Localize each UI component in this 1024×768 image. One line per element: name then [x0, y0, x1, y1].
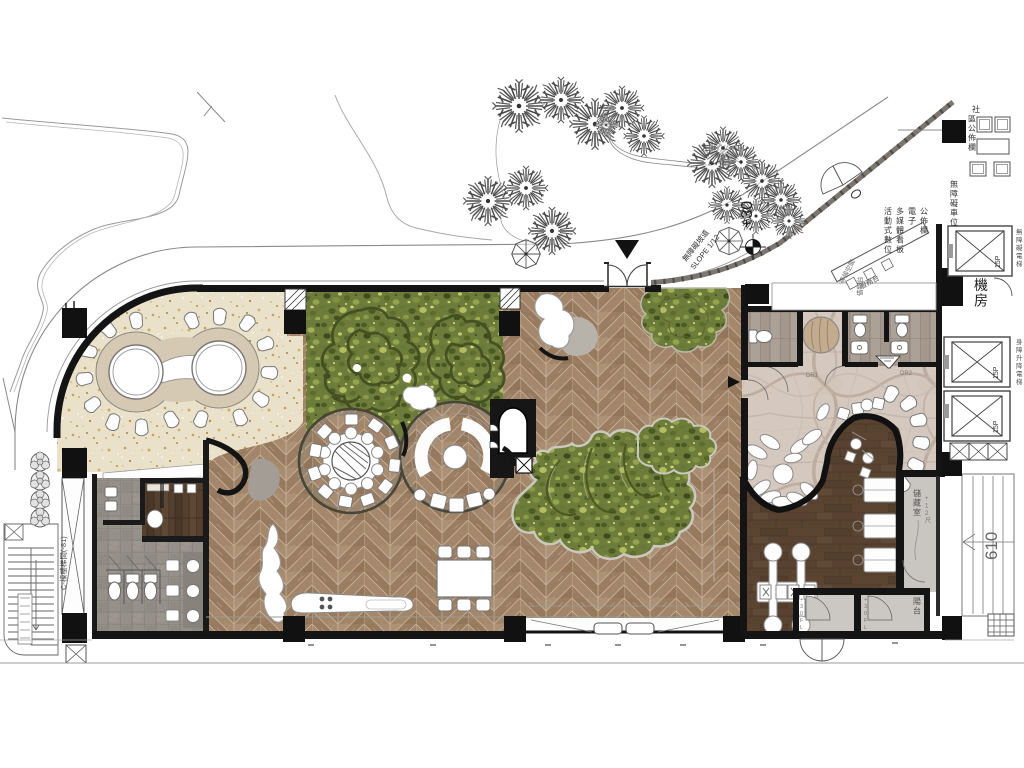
- svg-text:身障升降電梯: 身障升降電梯: [1016, 337, 1023, 386]
- svg-text:活動式數位: 活動式數位: [884, 206, 892, 254]
- svg-text:多媒體看板: 多媒體看板: [896, 206, 904, 254]
- svg-text:儲藏室: 儲藏室: [913, 488, 921, 517]
- svg-text:公佈欄: 公佈欄: [920, 207, 928, 235]
- svg-text:DR1: DR1: [806, 373, 819, 379]
- svg-text:機房: 機房: [974, 277, 988, 309]
- svg-text:無障礙電梯: 無障礙電梯: [1016, 227, 1023, 268]
- svg-text:借物台: 借物台: [855, 277, 864, 297]
- svg-text:15P: 15P: [995, 255, 1002, 268]
- svg-text:+30: +30: [739, 201, 756, 228]
- svg-text:15P: 15P: [993, 366, 1000, 379]
- svg-text:DR2: DR2: [900, 371, 913, 377]
- svg-text:C-棟樓梯間(-81): C-棟樓梯間(-81): [58, 536, 68, 590]
- svg-text:15P: 15P: [993, 420, 1000, 433]
- svg-text:陽台: 陽台: [913, 597, 921, 616]
- svg-text:610: 610: [982, 532, 1001, 560]
- svg-text:無障礙車位: 無障礙車位: [950, 179, 958, 227]
- svg-text:電子: 電子: [908, 207, 916, 226]
